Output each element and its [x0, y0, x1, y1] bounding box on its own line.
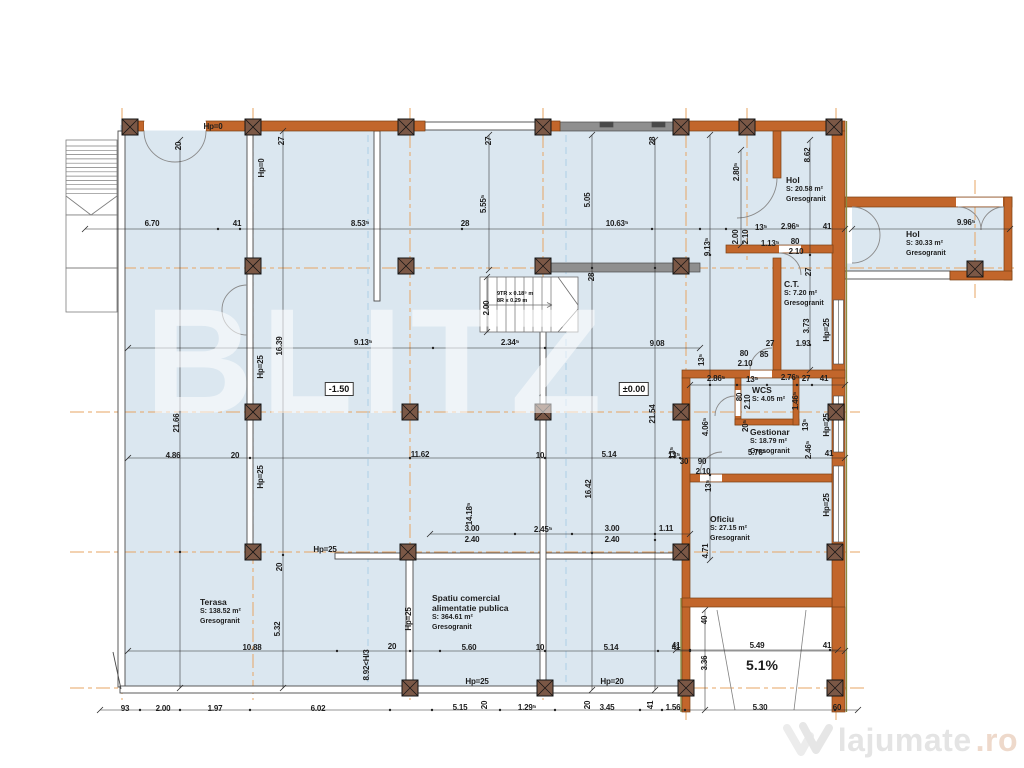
- site-watermark: lajumate.ro: [782, 718, 1018, 762]
- room-detail: Gresogranit: [784, 300, 824, 309]
- dim-label: 20: [276, 563, 284, 572]
- dim-label: 2.00: [732, 230, 740, 245]
- dim-label: 5.55⁵: [480, 195, 488, 213]
- dim-label: 1.93: [796, 340, 811, 348]
- dim-label: 20: [175, 142, 183, 151]
- dim-label: Hp=25: [823, 413, 831, 436]
- dim-label: 41: [233, 220, 242, 228]
- dim-label: Hp=25: [257, 465, 265, 488]
- room-detail: Gresogranit: [750, 448, 790, 457]
- dim-label: 9.08: [650, 340, 665, 348]
- dim-label: 10: [536, 644, 545, 652]
- room-detail: S: 4.05 m²: [752, 396, 785, 405]
- dim-label: 2.76⁵: [781, 374, 799, 382]
- dim-label: Hp=25: [823, 318, 831, 341]
- watermark-tld-text: .ro: [976, 722, 1018, 759]
- room-name: Spatiu comercial: [432, 594, 509, 603]
- dim-label: 2.45⁵: [534, 526, 552, 534]
- dim-label: 20: [481, 701, 489, 710]
- dim-label: 9.13⁵: [704, 238, 712, 256]
- room-detail: S: 364.61 m²: [432, 614, 509, 623]
- dim-label: 4.06⁵: [702, 418, 710, 436]
- w-heart-icon: [782, 718, 834, 762]
- dim-label: 60: [833, 704, 842, 712]
- dim-label: 2.80⁵: [733, 163, 741, 181]
- dim-label: 85: [760, 351, 769, 359]
- dim-label: 5.49: [750, 642, 765, 650]
- dim-label: Hp=25: [313, 546, 336, 554]
- room-label: C.T.S: 7.20 m²Gresogranit: [784, 280, 824, 308]
- dim-label: Hp=25: [405, 607, 413, 630]
- room-detail: S: 18.79 m²: [750, 438, 790, 447]
- dim-label: 4.71: [702, 544, 710, 559]
- room-detail: S: 27.15 m²: [710, 525, 750, 534]
- room-name: WCS: [752, 386, 785, 395]
- dim-label: 20: [388, 643, 397, 651]
- dim-label: Hp=25: [465, 678, 488, 686]
- dim-label: 13⁵: [705, 480, 713, 492]
- dim-label: 1.11: [659, 525, 673, 533]
- dim-label: 41: [820, 375, 829, 383]
- dim-label: 3.00: [605, 525, 620, 533]
- dim-label: 2.10: [742, 230, 750, 245]
- dim-label: 2.40: [465, 536, 480, 544]
- dim-label: 5.14: [604, 644, 619, 652]
- dim-label: 10.88: [242, 644, 261, 652]
- dim-label: 28: [649, 137, 657, 146]
- dim-label: 28: [588, 273, 596, 282]
- room-detail: Gresogranit: [906, 250, 946, 259]
- dim-label: 16.42: [585, 479, 593, 498]
- dim-label: 4.86: [166, 452, 181, 460]
- dim-label: 1.13⁵: [761, 240, 779, 248]
- dim-label: 80: [791, 238, 800, 246]
- dim-label: 2.40: [605, 536, 620, 544]
- dim-label: 20: [584, 701, 592, 710]
- dim-label: 14.18⁵: [466, 503, 474, 526]
- room-detail: S: 20.58 m²: [786, 186, 826, 195]
- room-detail: Gresogranit: [200, 618, 241, 627]
- dim-label: 2.10: [744, 395, 752, 410]
- level-label: -1.50: [325, 382, 354, 396]
- dim-label: 3.73: [803, 319, 811, 334]
- dim-label: 3.00: [465, 525, 480, 533]
- dim-label: 10.63⁵: [606, 220, 629, 228]
- dim-label: 41: [823, 642, 832, 650]
- dim-label: 13⁵: [755, 224, 767, 232]
- dim-label: 13⁵: [802, 419, 810, 431]
- dim-label: 93: [121, 705, 130, 713]
- dim-label: 27: [278, 137, 286, 146]
- floorplan-image: BLITZ Hp=02027Hp=06.70418.53⁵28275.55⁵28…: [0, 0, 1024, 768]
- dim-label: 90: [698, 458, 707, 466]
- dim-label: 3.45: [600, 704, 615, 712]
- room-label: WCSS: 4.05 m²: [752, 386, 785, 405]
- dim-label: 27: [766, 340, 775, 348]
- dim-label: 6.70: [145, 220, 160, 228]
- dim-label: 2.86⁵: [707, 375, 725, 383]
- stair-note-line: 9TR x 0.18⁵ m: [497, 291, 533, 298]
- dim-label: 41: [647, 701, 655, 710]
- dim-label: 5.30: [753, 704, 768, 712]
- dim-label: 9.13⁵: [354, 339, 372, 347]
- room-name: Gestionar: [750, 428, 790, 437]
- dim-label: 40: [701, 616, 709, 625]
- dim-label: 21.54: [649, 404, 657, 423]
- room-label: HolS: 30.33 m²Gresogranit: [906, 230, 946, 258]
- room-name: Hol: [786, 176, 826, 185]
- dim-label: 13⁵: [698, 354, 706, 366]
- dim-label: 6.02: [311, 705, 326, 713]
- dim-label: 30: [680, 458, 689, 466]
- room-detail: Gresogranit: [710, 535, 750, 544]
- room-name: Oficiu: [710, 515, 750, 524]
- dim-label: 8.62: [804, 148, 812, 163]
- dim-label: 5.15: [453, 704, 468, 712]
- dim-label: 2.10: [696, 468, 711, 476]
- dim-label: 41: [672, 642, 681, 650]
- dim-label: 11.62: [411, 451, 430, 459]
- dim-label: 41: [825, 450, 834, 458]
- dim-label: 9.96⁵: [957, 219, 975, 227]
- room-label: Spatiu comercialalimentatie publicaS: 36…: [432, 594, 509, 632]
- dim-label: 41: [823, 223, 832, 231]
- dim-label: 27: [802, 375, 811, 383]
- dim-label: 80: [740, 350, 749, 358]
- dim-label: 20: [231, 452, 240, 460]
- room-label: GestionarS: 18.79 m²Gresogranit: [750, 428, 790, 456]
- dim-label: 28: [461, 220, 470, 228]
- dim-label: 13⁵: [668, 452, 680, 460]
- dim-label: 5.60: [462, 644, 477, 652]
- dim-label: 2.10: [789, 248, 804, 256]
- room-name: Hol: [906, 230, 946, 239]
- room-label: OficiuS: 27.15 m²Gresogranit: [710, 515, 750, 543]
- dim-label: Hp=0: [258, 159, 266, 178]
- dim-label: 3.36: [701, 656, 709, 671]
- dim-label: 1.56: [666, 704, 681, 712]
- dim-label: 10: [536, 452, 545, 460]
- room-detail: Gresogranit: [432, 624, 509, 633]
- plan-labels-layer: Hp=02027Hp=06.70418.53⁵28275.55⁵285.0510…: [0, 0, 1024, 768]
- room-detail: S: 138.52 m²: [200, 608, 241, 617]
- watermark-brand-text: lajumate: [838, 722, 972, 759]
- dim-label: 2.00: [483, 301, 491, 316]
- dim-label: 1.97: [208, 705, 223, 713]
- dim-label: 2.10: [738, 360, 753, 368]
- dim-label: 1.46⁵: [792, 392, 800, 410]
- dim-label: 5.32: [274, 622, 282, 637]
- room-label: TerasaS: 138.52 m²Gresogranit: [200, 598, 241, 626]
- room-name: C.T.: [784, 280, 824, 289]
- dim-label: 8.92<H/3: [363, 649, 371, 680]
- dim-label: 21.66: [173, 413, 181, 432]
- dim-label: 16.39: [276, 336, 284, 355]
- dim-label: 8.53⁵: [351, 220, 369, 228]
- dim-label: Hp=0: [204, 123, 223, 131]
- stair-note: 9TR x 0.18⁵ m8R x 0.29 m: [497, 291, 533, 305]
- dim-label: Hp=25: [257, 355, 265, 378]
- ramp-slope-label: 5.1%: [746, 657, 778, 673]
- dim-label: 27: [805, 268, 813, 277]
- stair-note-line: 8R x 0.29 m: [497, 298, 533, 305]
- dim-label: 2.34⁵: [501, 339, 519, 347]
- dim-label: 27: [485, 137, 493, 146]
- dim-label: 2.00: [156, 705, 171, 713]
- room-name: Terasa: [200, 598, 241, 607]
- dim-label: 1.29⁵: [518, 704, 536, 712]
- dim-label: 5.05: [584, 193, 592, 208]
- room-detail: S: 7.20 m²: [784, 290, 824, 299]
- room-label: HolS: 20.58 m²Gresogranit: [786, 176, 826, 204]
- room-detail: S: 30.33 m²: [906, 240, 946, 249]
- dim-label: Hp=25: [823, 493, 831, 516]
- room-name: alimentatie publica: [432, 604, 509, 613]
- dim-label: 5.14: [602, 451, 617, 459]
- room-detail: Gresogranit: [786, 196, 826, 205]
- dim-label: Hp=20: [600, 678, 623, 686]
- level-label: ±0.00: [619, 382, 649, 396]
- dim-label: 13⁵: [746, 376, 758, 384]
- dim-label: 2.46⁵: [805, 441, 813, 459]
- dim-label: 2.96⁵: [781, 223, 799, 231]
- screenshot-canvas: { "plan_watermark": "BLITZ", "watermark"…: [0, 0, 1024, 768]
- dim-label: 20⁵: [742, 420, 750, 432]
